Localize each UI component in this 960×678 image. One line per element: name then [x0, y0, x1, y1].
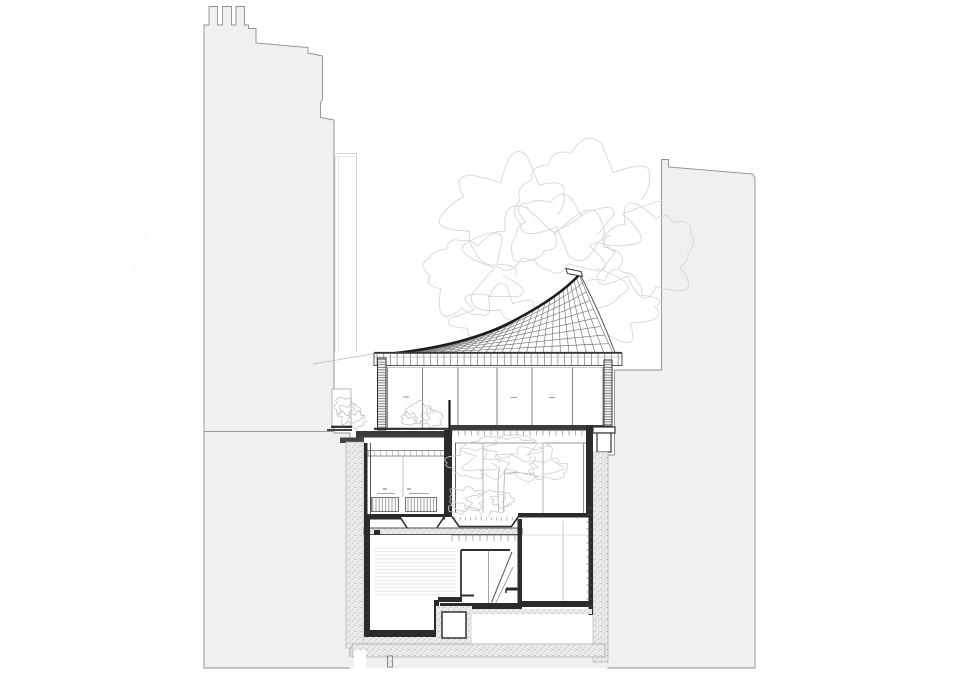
bench-left — [372, 498, 399, 512]
tree-canopy-scribble — [439, 151, 583, 270]
right-parapet-stem — [597, 433, 611, 452]
basement-ceiling-slab — [364, 528, 522, 535]
courtyard-canopy-scribble — [483, 435, 549, 462]
foundation-notch — [354, 650, 366, 668]
left-room — [368, 443, 445, 514]
eaves-band — [374, 353, 622, 366]
basement — [364, 508, 593, 646]
context-buildings — [134, 7, 755, 669]
curved-roof — [375, 269, 615, 357]
left-retaining-wall — [346, 442, 364, 648]
planters — [400, 517, 519, 529]
courtyard-tree — [445, 435, 568, 519]
stair-stringer — [492, 552, 513, 603]
stray-speck — [145, 236, 147, 238]
architectural-section — [0, 0, 960, 678]
drain-stub — [388, 656, 393, 667]
ridge-cap — [566, 269, 583, 277]
left-building-silhouette — [204, 7, 350, 669]
pavilion-storey — [331, 358, 612, 431]
stray-speck — [134, 265, 135, 266]
foundation-band — [352, 644, 605, 657]
ground-floor — [364, 425, 593, 529]
basement-right-room — [522, 508, 592, 606]
pavilion-mullions — [388, 368, 604, 429]
joist-ticks — [452, 535, 521, 541]
right-parapet-cap — [593, 427, 615, 433]
retaining-walls — [346, 442, 608, 662]
ground-shrub-scribble — [450, 486, 485, 511]
courtyard-canopy-scribble — [445, 448, 500, 479]
stair — [461, 550, 522, 603]
right-party-wall — [593, 452, 608, 662]
basement-room-stripes — [374, 548, 456, 595]
tree-canopy-scribble — [514, 138, 663, 260]
pit-room — [442, 612, 466, 638]
hall-ceiling-ticks — [452, 431, 589, 436]
bush-scribble — [406, 400, 435, 424]
section-drawing-canvas — [0, 0, 960, 678]
trough-main — [452, 517, 519, 527]
bench-right — [406, 498, 437, 512]
trough-left — [400, 517, 444, 529]
lower-basement — [436, 606, 472, 644]
right-building-silhouette — [607, 160, 755, 669]
room-ceiling-ticks — [369, 451, 441, 456]
pavilion-right-pier — [604, 360, 612, 426]
bush-scribble — [420, 408, 443, 427]
dark-structure-basement — [364, 517, 593, 640]
pavilion-left-pier — [378, 358, 387, 430]
